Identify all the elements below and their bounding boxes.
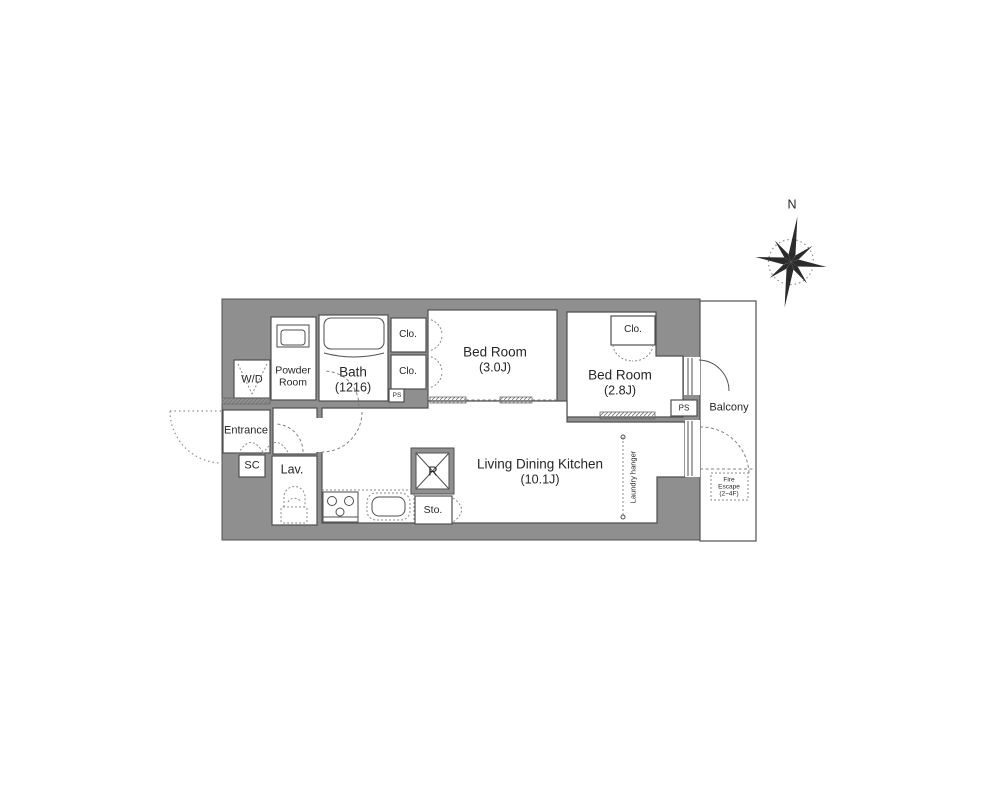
label-ps-b: PS [679,403,690,412]
label-compass-north: N [787,198,796,213]
label-closet-c: Clo. [624,324,642,336]
label-fire-escape: Fire Escape (2~4F) [718,476,740,497]
label-bedroom2: Bed Room (2.8J) [588,368,652,399]
floor-plan-art [0,0,999,801]
label-shoe-closet: SC [244,460,259,473]
label-entrance: Entrance [224,425,268,438]
label-ps-a: PS [393,392,402,400]
compass-rose [749,211,833,312]
label-refrigerator: R [428,463,437,478]
balcony-area [700,301,756,541]
label-closet-a: Clo. [399,329,417,341]
label-wd: W/D [241,374,262,387]
label-ldk: Living Dining Kitchen (10.1J) [477,457,603,488]
label-powder-room: Powder Room [275,365,311,390]
front-door-arc [170,411,222,463]
label-balcony: Balcony [709,402,748,415]
hallway [273,408,317,454]
label-laundry-hanger: Laundry hanger [630,451,639,504]
floor-plan-page: W/D Powder Room Bath (1216) Clo. Clo. PS… [0,0,999,801]
hall-ldk-opening [316,418,324,452]
label-bath: Bath (1216) [335,365,371,396]
label-storage: Sto. [424,504,443,516]
washbasin-icon [277,325,309,347]
label-lavatory: Lav. [281,463,304,478]
label-closet-b: Clo. [399,366,417,378]
label-bedroom1: Bed Room (3.0J) [463,345,527,376]
stove-icon [323,492,358,522]
